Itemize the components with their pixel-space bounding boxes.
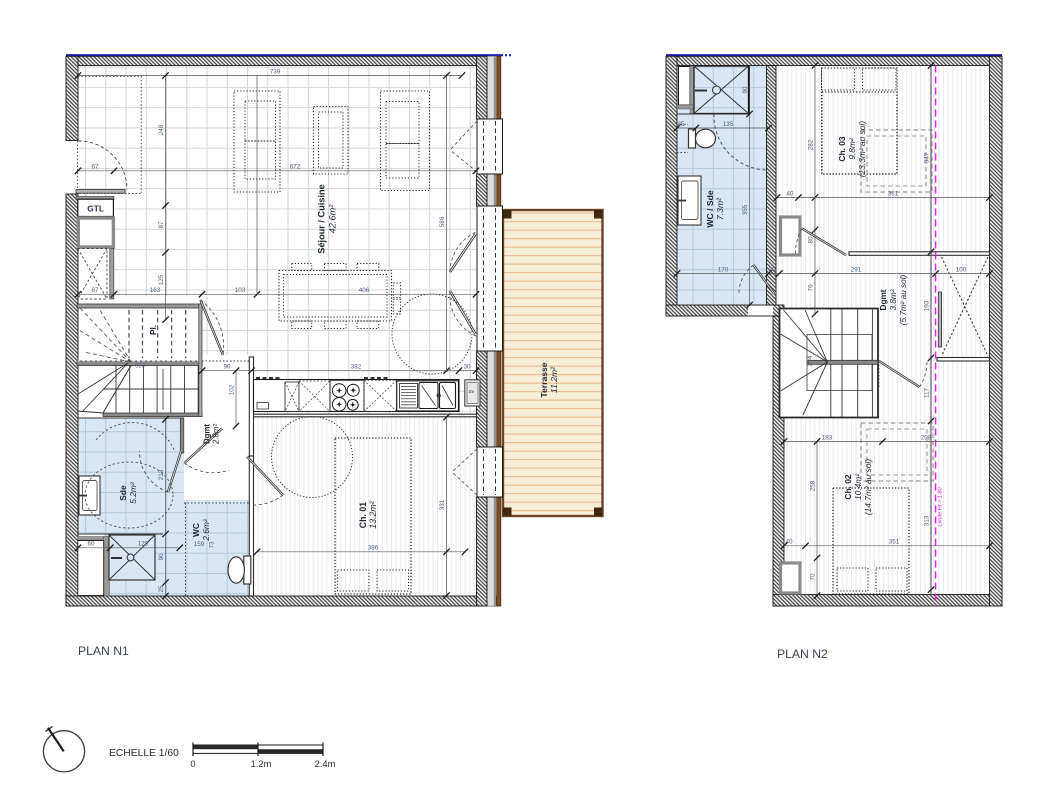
svg-text:386: 386 bbox=[368, 545, 379, 552]
svg-text:WC / Sde: WC / Sde bbox=[705, 190, 715, 227]
svg-text:129: 129 bbox=[138, 541, 149, 548]
svg-text:Séjour / Cuisine: Séjour / Cuisine bbox=[317, 184, 327, 253]
svg-text:30: 30 bbox=[463, 364, 471, 371]
svg-text:170: 170 bbox=[718, 266, 729, 273]
svg-text:1.2m: 1.2m bbox=[251, 759, 272, 769]
svg-text:163: 163 bbox=[150, 287, 161, 294]
svg-text:2.8m²: 2.8m² bbox=[212, 424, 221, 445]
svg-text:73: 73 bbox=[209, 541, 216, 549]
svg-text:(14.7m² au sol): (14.7m² au sol) bbox=[863, 459, 873, 516]
svg-text:Dgmt: Dgmt bbox=[879, 289, 888, 310]
svg-text:291: 291 bbox=[851, 266, 862, 273]
svg-text:3.8m²: 3.8m² bbox=[889, 289, 898, 310]
svg-text:117: 117 bbox=[924, 387, 931, 398]
svg-text:213: 213 bbox=[158, 469, 165, 480]
svg-text:Ev: Ev bbox=[469, 389, 475, 394]
svg-text:258: 258 bbox=[810, 480, 817, 491]
svg-text:70: 70 bbox=[810, 573, 817, 581]
svg-text:282: 282 bbox=[808, 139, 815, 150]
svg-text:42.6m²: 42.6m² bbox=[328, 204, 338, 234]
svg-text:Pl.: Pl. bbox=[149, 325, 158, 335]
svg-text:406: 406 bbox=[359, 287, 370, 294]
svg-text:347: 347 bbox=[924, 152, 931, 163]
svg-text:11.2m²: 11.2m² bbox=[549, 366, 559, 393]
svg-text:76: 76 bbox=[808, 284, 815, 292]
svg-text:204: 204 bbox=[807, 355, 814, 366]
svg-text:361: 361 bbox=[888, 190, 899, 197]
svg-text:60: 60 bbox=[87, 541, 95, 548]
svg-text:586: 586 bbox=[439, 216, 446, 227]
svg-text:PLAN N2: PLAN N2 bbox=[777, 647, 828, 661]
svg-text:90: 90 bbox=[158, 553, 165, 561]
svg-text:(5.7m² au sol): (5.7m² au sol) bbox=[899, 274, 908, 325]
svg-text:Dgmt: Dgmt bbox=[203, 424, 212, 444]
svg-text:248: 248 bbox=[158, 124, 165, 135]
svg-text:Terrasse: Terrasse bbox=[539, 362, 549, 397]
svg-text:125: 125 bbox=[158, 274, 165, 285]
svg-text:90: 90 bbox=[742, 86, 749, 94]
svg-text:Ch. 03: Ch. 03 bbox=[837, 136, 847, 161]
svg-text:87: 87 bbox=[158, 221, 165, 229]
svg-text:2.4m: 2.4m bbox=[315, 759, 336, 769]
svg-text:Sde: Sde bbox=[118, 485, 128, 501]
svg-text:Limite Ht > 1.80: Limite Ht > 1.80 bbox=[938, 486, 944, 526]
svg-text:7.3m²: 7.3m² bbox=[715, 197, 725, 220]
svg-text:Ch. 02: Ch. 02 bbox=[843, 474, 853, 499]
svg-text:ECHELLE 1/60: ECHELLE 1/60 bbox=[109, 748, 179, 759]
svg-text:80: 80 bbox=[808, 236, 815, 244]
svg-text:183: 183 bbox=[822, 434, 833, 441]
svg-text:40: 40 bbox=[785, 539, 793, 546]
svg-text:9.8m²: 9.8m² bbox=[847, 137, 857, 160]
svg-text:20: 20 bbox=[768, 266, 776, 273]
svg-text:67: 67 bbox=[91, 287, 99, 294]
svg-text:355: 355 bbox=[742, 204, 749, 215]
svg-text:(13.3m² au sol): (13.3m² au sol) bbox=[857, 121, 867, 178]
svg-text:10.4m²: 10.4m² bbox=[853, 473, 863, 500]
svg-text:351: 351 bbox=[889, 539, 900, 546]
svg-text:672: 672 bbox=[290, 164, 301, 171]
svg-text:100: 100 bbox=[956, 266, 967, 273]
svg-text:330: 330 bbox=[135, 364, 145, 370]
svg-text:40: 40 bbox=[786, 190, 794, 197]
svg-text:208: 208 bbox=[921, 434, 932, 441]
svg-text:102: 102 bbox=[229, 384, 236, 395]
svg-text:PLAN N1: PLAN N1 bbox=[78, 644, 129, 658]
svg-text:5.2m²: 5.2m² bbox=[128, 481, 138, 504]
svg-text:331: 331 bbox=[439, 499, 446, 510]
svg-text:135: 135 bbox=[723, 121, 734, 128]
svg-text:739: 739 bbox=[270, 68, 281, 75]
svg-text:35: 35 bbox=[677, 121, 685, 128]
svg-text:67: 67 bbox=[91, 164, 99, 171]
svg-text:159: 159 bbox=[194, 541, 205, 548]
svg-text:0: 0 bbox=[190, 759, 195, 769]
svg-text:Ch. 01: Ch. 01 bbox=[358, 502, 368, 529]
svg-text:193: 193 bbox=[924, 300, 931, 311]
svg-text:13.2m²: 13.2m² bbox=[368, 500, 378, 528]
svg-text:103: 103 bbox=[235, 287, 246, 294]
svg-text:25: 25 bbox=[158, 585, 165, 593]
svg-text:90: 90 bbox=[223, 364, 231, 371]
svg-text:GTL: GTL bbox=[87, 204, 104, 214]
svg-text:382: 382 bbox=[351, 364, 362, 371]
svg-text:313: 313 bbox=[924, 515, 931, 526]
svg-text:2.6m²: 2.6m² bbox=[201, 518, 211, 542]
svg-text:WC: WC bbox=[191, 523, 201, 537]
